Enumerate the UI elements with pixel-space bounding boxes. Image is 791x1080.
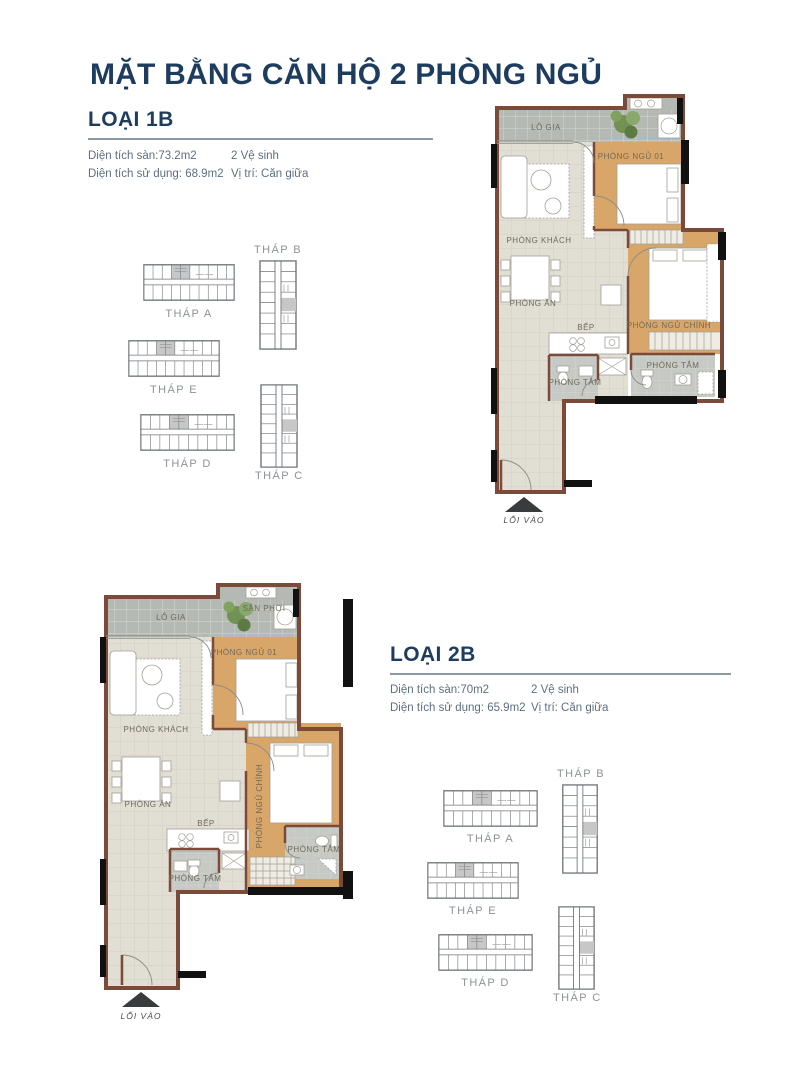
tower-label-d-1b: THÁP D: [140, 458, 235, 470]
tower-plan-a-2b: [443, 786, 538, 830]
type-1b-toilets: 2 Vệ sinh: [231, 150, 279, 162]
tower-label-a-1b: THÁP A: [143, 308, 235, 320]
room-label-bath1: PHÒNG TẮM: [549, 378, 602, 387]
type-2b-area-usable: Diện tích sử dụng: 65.9m2: [390, 702, 526, 714]
entrance-arrow-1b: LỐI VÀO: [503, 497, 544, 525]
type-1b-area-usable: Diện tích sử dụng: 68.9m2: [88, 168, 224, 180]
type-1b-area-floor: Diện tích sàn:73.2m2: [88, 150, 197, 162]
tower-plan-a-1b: [143, 260, 235, 304]
room-label-balcony: LÔ GIA: [156, 613, 186, 622]
type-2b-divider: [390, 673, 731, 675]
type-1b-position: Vị trí: Căn giữa: [231, 168, 308, 180]
tower-label-c-1b: THÁP C: [255, 470, 303, 482]
room-label-bedroom1: PHÒNG NGỦ 01: [211, 648, 278, 657]
entrance-label: LỐI VÀO: [120, 1010, 161, 1021]
entrance-arrow-2b: LỐI VÀO: [120, 992, 161, 1021]
tower-label-b-1b: THÁP B: [254, 244, 302, 256]
type-2b-heading: LOẠI 2B: [390, 643, 476, 667]
floor-plan-2b: LÔ GIA SÂN PHƠI PHÒNG NGỦ 01 PHÒNG KHÁCH…: [78, 573, 378, 1048]
tower-label-c-2b: THÁP C: [553, 992, 599, 1004]
type-1b-divider: [88, 138, 433, 140]
room-label-dining: PHÒNG ĂN: [510, 299, 557, 308]
tower-plan-c-2b: [554, 906, 599, 990]
room-label-dining: PHÒNG ĂN: [125, 800, 172, 809]
tower-plan-c-1b: [256, 384, 302, 468]
type-1b-heading: LOẠI 1B: [88, 108, 174, 132]
type-2b-position: Vị trí: Căn giữa: [531, 702, 608, 714]
floor-plan-1b: LÔ GIA PHÒNG NGỦ 01 PHÒNG KHÁCH PHÒNG ĂN…: [455, 80, 740, 525]
room-label-master: PHÒNG NGỦ CHÍNH: [255, 764, 264, 848]
room-label-master: PHÒNG NGỦ CHÍNH: [627, 321, 711, 330]
room-label-kitchen: BẾP: [577, 322, 595, 332]
tower-plan-e-1b: [128, 336, 220, 380]
tower-label-d-2b: THÁP D: [438, 977, 533, 989]
tower-plan-b-1b: [255, 260, 301, 350]
room-label-balcony: LÔ GIA: [531, 123, 561, 132]
room-label-bath2: PHÒNG TẮM: [288, 845, 341, 854]
brochure-page: MẶT BẰNG CĂN HỘ 2 PHÒNG NGỦ LOẠI 1B Diện…: [0, 0, 791, 1080]
tower-label-b-2b: THÁP B: [557, 768, 603, 780]
room-label-bedroom1: PHÒNG NGỦ 01: [598, 152, 665, 161]
tower-label-e-2b: THÁP E: [427, 905, 519, 917]
type-2b-area-floor: Diện tích sàn:70m2: [390, 684, 489, 696]
entrance-label: LỐI VÀO: [503, 514, 544, 525]
room-label-living: PHÒNG KHÁCH: [123, 725, 188, 734]
tower-plan-d-1b: [140, 410, 235, 454]
tower-label-a-2b: THÁP A: [443, 833, 538, 845]
tower-plan-e-2b: [427, 858, 519, 902]
room-label-living: PHÒNG KHÁCH: [506, 236, 571, 245]
room-label-kitchen: BẾP: [197, 818, 215, 828]
room-label-bath2: PHÒNG TẮM: [647, 361, 700, 370]
type-2b-toilets: 2 Vệ sinh: [531, 684, 579, 696]
tower-label-e-1b: THÁP E: [128, 384, 220, 396]
tower-plan-b-2b: [558, 784, 602, 874]
room-label-bath1: PHÒNG TẮM: [169, 874, 222, 883]
room-label-drying: SÂN PHƠI: [243, 604, 286, 613]
tower-plan-d-2b: [438, 930, 533, 974]
